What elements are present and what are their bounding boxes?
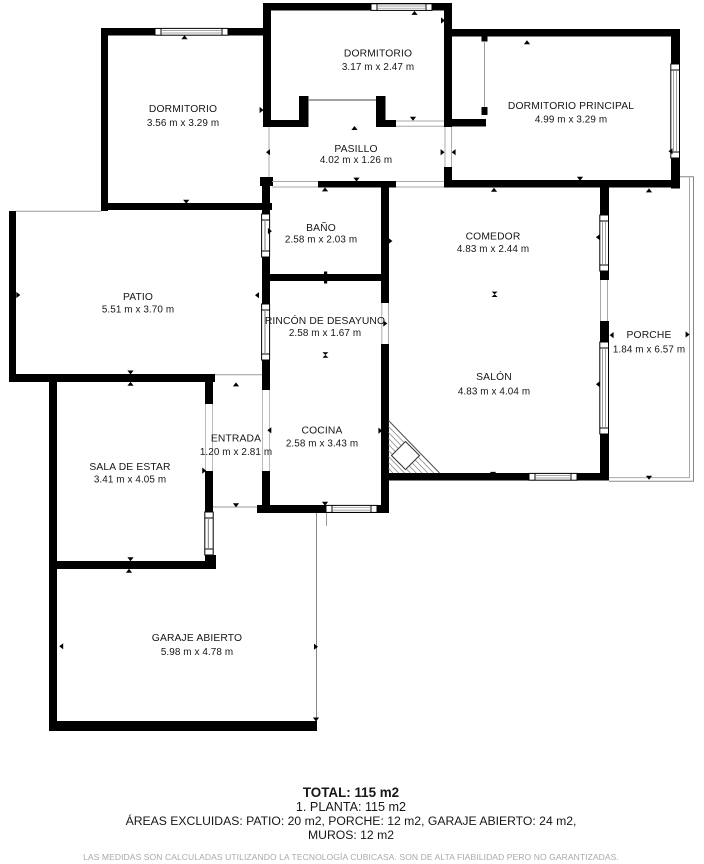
svg-text:4.83 m x 2.44 m: 4.83 m x 2.44 m <box>457 244 529 255</box>
svg-text:LAS MEDIDAS SON CALCULADAS UTI: LAS MEDIDAS SON CALCULADAS UTILIZANDO LA… <box>83 852 619 862</box>
svg-text:RINCÓN DE DESAYUNO: RINCÓN DE DESAYUNO <box>265 314 385 327</box>
svg-text:2.58 m x 2.03 m: 2.58 m x 2.03 m <box>285 235 357 246</box>
svg-text:PORCHE: PORCHE <box>627 330 672 341</box>
svg-text:SALA DE ESTAR: SALA DE ESTAR <box>89 462 170 473</box>
svg-text:1.20 m x 2.81 m: 1.20 m x 2.81 m <box>200 447 272 458</box>
svg-text:BAÑO: BAÑO <box>306 221 336 234</box>
svg-text:DORMITORIO PRINCIPAL: DORMITORIO PRINCIPAL <box>508 101 634 112</box>
svg-text:3.17 m x 2.47 m: 3.17 m x 2.47 m <box>342 62 414 73</box>
svg-text:DORMITORIO: DORMITORIO <box>149 104 217 115</box>
svg-text:ENTRADA: ENTRADA <box>211 434 261 445</box>
svg-text:1. PLANTA: 115 m2: 1. PLANTA: 115 m2 <box>296 800 406 814</box>
svg-text:3.56 m x 3.29 m: 3.56 m x 3.29 m <box>147 118 219 129</box>
svg-text:5.98 m x 4.78 m: 5.98 m x 4.78 m <box>161 647 233 658</box>
svg-text:PATIO: PATIO <box>123 292 153 303</box>
svg-text:GARAJE ABIERTO: GARAJE ABIERTO <box>152 633 242 644</box>
svg-text:5.51 m x 3.70 m: 5.51 m x 3.70 m <box>102 305 174 316</box>
svg-text:3.41 m x 4.05 m: 3.41 m x 4.05 m <box>94 475 166 486</box>
svg-text:2.58 m x 1.67 m: 2.58 m x 1.67 m <box>289 328 361 339</box>
svg-text:ÁREAS EXCLUIDAS: PATIO: 20 m2,: ÁREAS EXCLUIDAS: PATIO: 20 m2, PORCHE: 1… <box>126 813 577 828</box>
svg-text:4.99 m x 3.29 m: 4.99 m x 3.29 m <box>535 115 607 126</box>
svg-text:4.83 m x 4.04 m: 4.83 m x 4.04 m <box>458 387 530 398</box>
svg-text:4.02 m x 1.26 m: 4.02 m x 1.26 m <box>320 155 392 166</box>
svg-text:2.58 m x 3.43 m: 2.58 m x 3.43 m <box>286 439 358 450</box>
svg-text:DORMITORIO: DORMITORIO <box>344 49 412 60</box>
svg-text:MUROS: 12 m2: MUROS: 12 m2 <box>308 828 394 842</box>
svg-text:SALÓN: SALÓN <box>476 370 512 383</box>
svg-text:TOTAL: 115 m2: TOTAL: 115 m2 <box>303 785 399 800</box>
svg-text:PASILLO: PASILLO <box>334 144 377 155</box>
svg-text:1.84 m x 6.57 m: 1.84 m x 6.57 m <box>613 345 685 356</box>
svg-text:COCINA: COCINA <box>302 426 343 437</box>
svg-text:COMEDOR: COMEDOR <box>466 232 521 243</box>
